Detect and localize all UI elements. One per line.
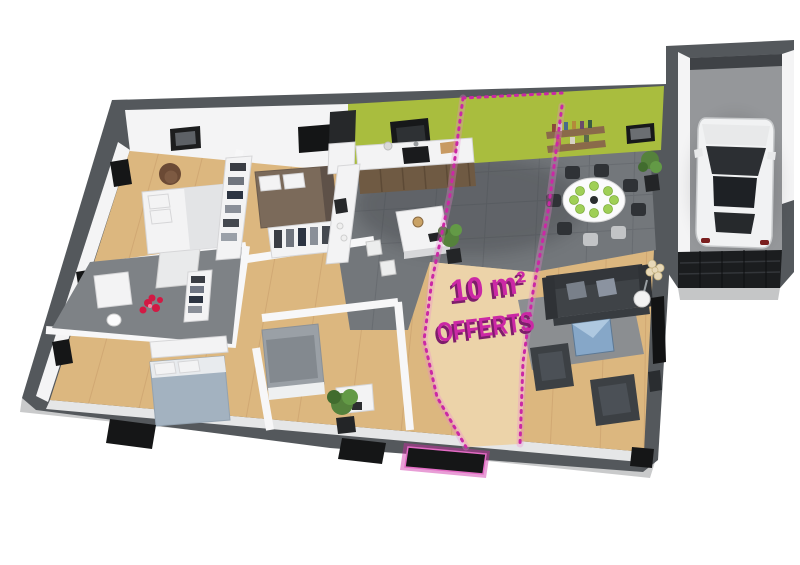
cup [341,235,347,241]
car [694,118,776,248]
plate [590,209,599,218]
pillow [154,362,176,375]
clothes [310,227,318,245]
clothes [274,230,282,248]
bed-blanket [266,335,318,383]
wall-tv [651,296,666,364]
tall-cabinet-upper [329,110,356,144]
clothes [191,276,205,283]
plate [590,182,599,191]
clothes [225,205,241,213]
flower [149,295,156,302]
pillow [178,360,200,373]
picture-frame [626,123,655,144]
plate [576,187,585,196]
book [564,122,568,130]
plate [570,196,579,205]
floor-plan-canvas: 10 m² 10 m² OFFERTS OFFERTS [0,0,800,565]
closet-wardrobe [184,270,212,322]
clothes [230,163,246,171]
foliage [650,161,662,173]
armchair-cushion [165,171,178,184]
flower [152,304,160,312]
center-bowl [590,196,598,204]
pillow [283,173,305,189]
car-taillight-left [701,238,710,243]
media-shelf [648,370,662,392]
clothes [228,177,244,185]
clothes [286,229,294,247]
clothes [188,306,202,313]
dining-chair [583,233,598,246]
floor-plan-render: 10 m² 10 m² OFFERTS OFFERTS [0,0,800,565]
dining-chair [594,164,609,177]
car-taillight-right [760,240,769,245]
flower [140,307,147,314]
car-rear-window [714,212,755,234]
plant-pot [644,174,660,192]
plate [604,205,613,214]
sofa-pillow [596,278,617,297]
car-hood [702,124,770,146]
ornament [570,137,575,144]
armchair [590,374,640,426]
clothes [298,228,306,246]
bar-stool [380,260,396,276]
plate [576,205,585,214]
window-opening [630,447,654,468]
faucet [414,142,419,147]
pillow [259,175,281,191]
flower [652,267,658,273]
lamp-shade [634,291,650,307]
car-sunroof [713,176,757,208]
jar [384,142,392,150]
plant-pot [336,416,356,434]
ornament [584,135,589,142]
armchair-cushion [538,351,566,381]
dining-chair [611,226,626,239]
foliage [450,224,462,236]
plate [610,196,619,205]
wall-art-photo [175,131,196,146]
foliage [638,162,648,172]
armchair [530,343,574,391]
flower [148,304,152,308]
sofa-pillow [566,281,587,300]
dining-chair [623,179,638,192]
car-windshield [706,146,766,176]
dining-chair [565,166,580,179]
bedroom3 [150,336,230,426]
clothes [223,219,239,227]
clothes [227,191,243,199]
plate [604,187,613,196]
car-mirror-right [767,152,776,160]
foliage [327,390,341,404]
pillow [150,209,172,224]
dining-chair [557,222,572,235]
fruit-bowl [413,217,423,227]
clothes [189,296,203,303]
pillow [148,194,170,209]
garage-door [678,250,782,288]
garage-foundation [678,288,780,300]
armchair-cushion [598,383,631,416]
coffee-table [572,319,614,356]
book [572,121,576,129]
garage-left-wall-face [678,52,690,262]
dining-chair [631,203,646,216]
sink [402,146,430,164]
cup [337,223,343,229]
clothes [190,286,204,293]
foliage [342,389,358,405]
espresso-machine [334,198,348,214]
photo [630,127,651,140]
book [580,121,584,129]
toilet [107,314,121,326]
flower [157,297,163,303]
plant-pot [446,248,462,264]
bar-stool [366,240,382,256]
garage [666,40,794,300]
book [588,120,592,128]
clothes [221,233,237,241]
garage-right-wall-face [782,50,794,204]
bathroom-vanity [94,272,132,308]
